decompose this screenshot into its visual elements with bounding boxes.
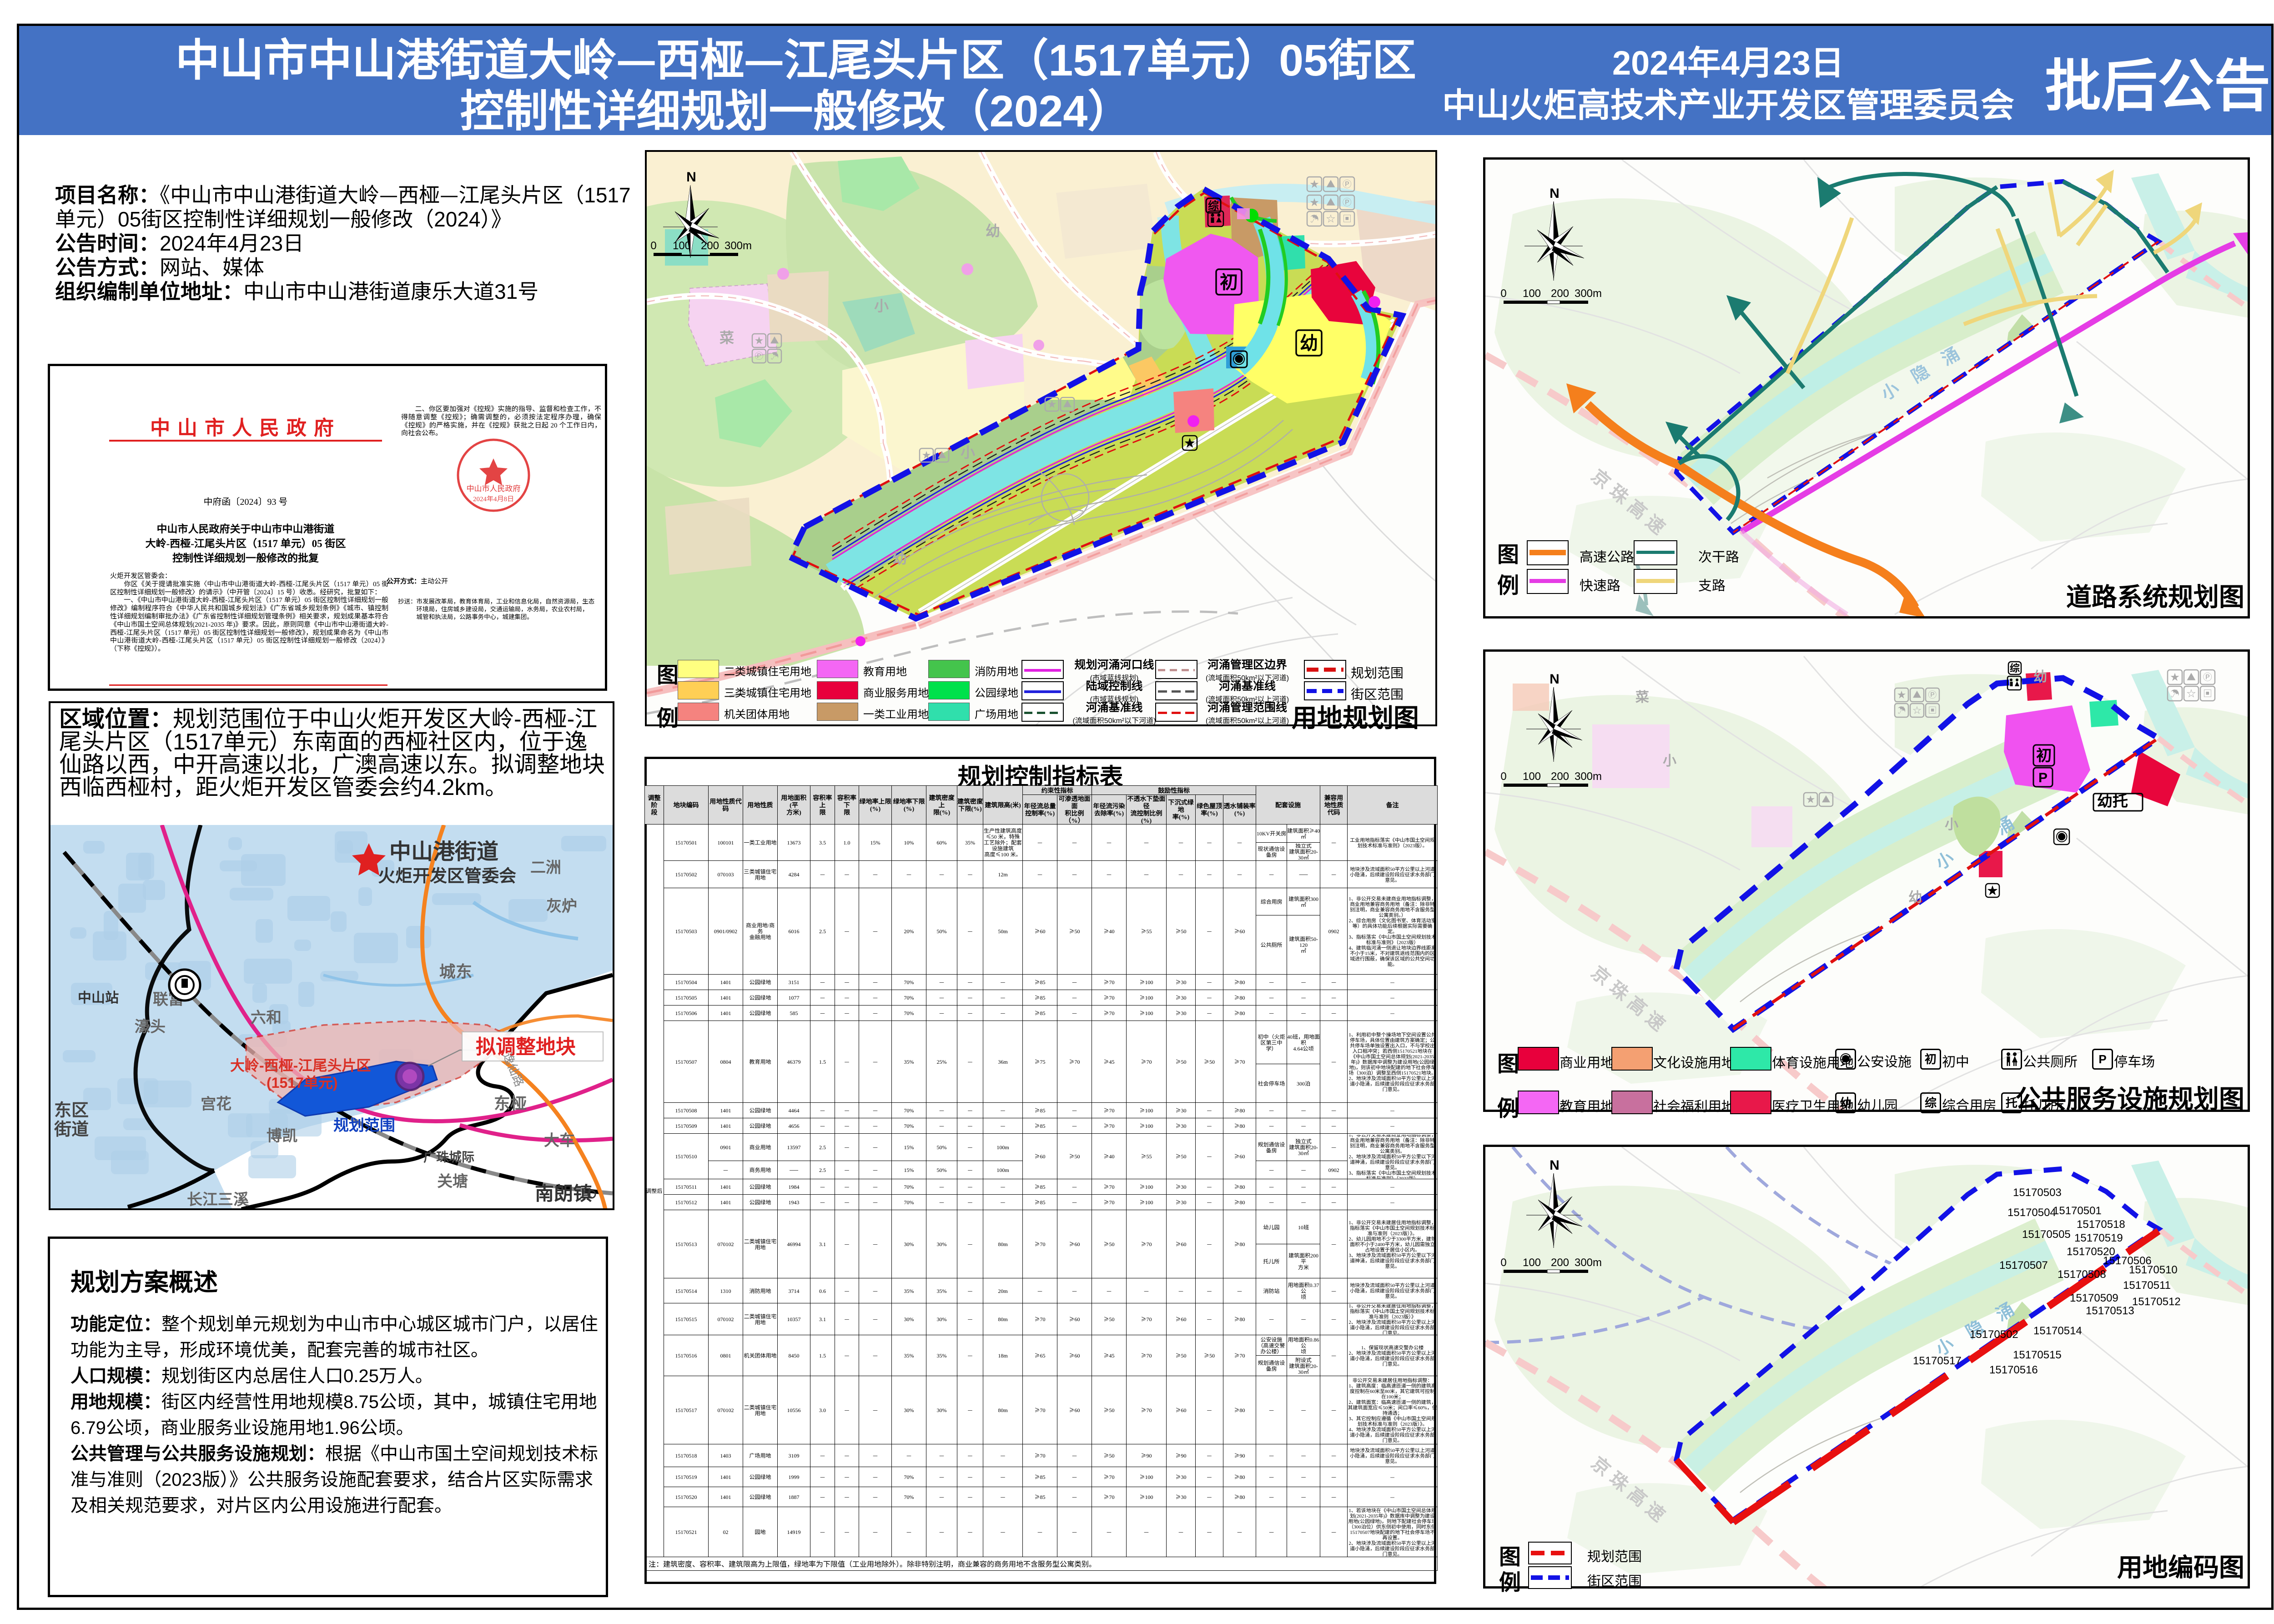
svg-text:15170516: 15170516: [1989, 1361, 2038, 1377]
svg-text:0: 0: [1500, 284, 1506, 300]
svg-text:二洲: 二洲: [530, 855, 561, 877]
svg-text:小: 小: [961, 441, 975, 462]
svg-text:N: N: [686, 166, 696, 186]
svg-text:2024年4月8日: 2024年4月8日: [473, 494, 514, 503]
svg-text:灰炉: 灰炉: [546, 894, 577, 916]
svg-text:0: 0: [1500, 767, 1506, 783]
svg-text:300m: 300m: [724, 236, 752, 252]
svg-text:濠头: 濠头: [135, 1014, 166, 1036]
svg-text:菜: 菜: [1635, 686, 1650, 706]
svg-text:☆: ☆: [2187, 686, 2196, 699]
svg-text:15170504: 15170504: [2007, 1203, 2056, 1219]
svg-text:六和: 六和: [251, 1005, 282, 1027]
svg-text:15170502: 15170502: [1970, 1325, 2018, 1341]
svg-text:小: 小: [1945, 813, 1958, 833]
svg-text:综: 综: [1208, 197, 1219, 213]
svg-text:★: ★: [1310, 195, 1319, 208]
svg-text:☂: ☂: [1897, 704, 1906, 716]
svg-text:菜: 菜: [719, 327, 735, 347]
svg-text:200: 200: [1551, 284, 1569, 300]
svg-text:300m: 300m: [1575, 284, 1602, 300]
svg-text:15170510: 15170510: [2129, 1261, 2178, 1277]
svg-text:长江三溪: 长江三溪: [187, 1187, 249, 1209]
svg-text:宫花: 宫花: [201, 1091, 231, 1114]
svg-text:★: ★: [922, 449, 931, 461]
svg-text:0: 0: [650, 236, 656, 252]
svg-text:15170517: 15170517: [1913, 1352, 1962, 1368]
svg-text:★: ★: [755, 334, 763, 347]
svg-text:▲: ▲: [1326, 177, 1335, 190]
svg-text:规划范围: 规划范围: [333, 1113, 395, 1135]
svg-text:街道: 街道: [54, 1115, 89, 1140]
svg-text:火炬开发区管委会: 火炬开发区管委会: [378, 862, 516, 887]
svg-text:N: N: [1550, 182, 1560, 202]
svg-text:Ⓟ: Ⓟ: [755, 350, 763, 362]
svg-text:初: 初: [2036, 743, 2052, 765]
svg-text:▣: ▣: [1343, 211, 1352, 225]
svg-text:综: 综: [2010, 660, 2020, 675]
svg-text:15170515: 15170515: [2013, 1346, 2062, 1362]
svg-text:中山站: 中山站: [78, 986, 119, 1006]
svg-text:100: 100: [673, 236, 691, 252]
svg-text:中山港街道: 中山港街道: [389, 834, 498, 865]
svg-text:幼: 幼: [1300, 328, 1318, 355]
svg-text:P: P: [2038, 766, 2048, 786]
svg-text:N: N: [1550, 1154, 1560, 1174]
svg-text:▣: ▣: [1928, 704, 1937, 716]
svg-text:200: 200: [1551, 767, 1569, 783]
svg-text:100: 100: [1523, 284, 1541, 300]
svg-text:☆: ☆: [1326, 211, 1335, 225]
svg-text:☆: ☆: [1912, 704, 1921, 716]
svg-text:★: ★: [1310, 177, 1319, 190]
svg-text:N: N: [1550, 668, 1560, 688]
svg-text:★: ★: [1806, 793, 1815, 805]
svg-text:幼: 幼: [892, 547, 907, 568]
svg-text:小: 小: [874, 295, 889, 316]
svg-text:广珠城际: 广珠城际: [423, 1147, 474, 1166]
svg-text:15170513: 15170513: [2086, 1302, 2134, 1317]
svg-text:关塘: 关塘: [437, 1169, 468, 1191]
svg-text:★: ★: [1897, 689, 1906, 701]
svg-text:100: 100: [1523, 767, 1541, 783]
svg-text:Ⓟ: Ⓟ: [1928, 689, 1937, 701]
svg-text:▲: ▲: [1326, 195, 1335, 208]
svg-text:300m: 300m: [1575, 1253, 1602, 1269]
svg-text:☂: ☂: [1310, 211, 1319, 225]
svg-text:200: 200: [1551, 1253, 1569, 1269]
svg-text:拟调整地块: 拟调整地块: [476, 1031, 576, 1060]
svg-text:幼托: 幼托: [2097, 789, 2128, 811]
svg-text:▲: ▲: [937, 449, 946, 461]
svg-text:幼: 幼: [1908, 886, 1922, 906]
svg-text:小: 小: [1663, 749, 1676, 769]
svg-text:15170503: 15170503: [2013, 1183, 2062, 1199]
svg-text:▲: ▲: [2187, 670, 2196, 683]
svg-text:Ⓟ: Ⓟ: [1343, 195, 1352, 208]
svg-text:★: ★: [1987, 883, 1997, 897]
svg-text:0: 0: [1500, 1253, 1506, 1269]
svg-text:南朗镇: 南朗镇: [535, 1178, 592, 1206]
svg-text:100: 100: [1523, 1253, 1541, 1269]
svg-text:Ⓟ: Ⓟ: [2203, 670, 2212, 683]
svg-text:▣: ▣: [2203, 686, 2212, 699]
svg-text:▲: ▲: [1912, 689, 1921, 701]
svg-text:幼: 幼: [2033, 665, 2047, 685]
svg-text:▲: ▲: [770, 334, 779, 347]
svg-text:15170511: 15170511: [2123, 1276, 2171, 1292]
svg-text:▲: ▲: [1821, 793, 1830, 805]
svg-text:◉: ◉: [2056, 828, 2068, 845]
svg-text:☂: ☂: [770, 350, 779, 362]
svg-text:(1517单元): (1517单元): [267, 1071, 338, 1092]
svg-text:15170512: 15170512: [2132, 1292, 2181, 1308]
svg-text:★: ★: [2170, 670, 2179, 683]
svg-text:★: ★: [1185, 435, 1195, 450]
svg-text:◉: ◉: [1233, 350, 1245, 368]
svg-text:15170514: 15170514: [2033, 1322, 2082, 1337]
svg-text:200: 200: [701, 236, 719, 252]
svg-text:城东: 城东: [439, 959, 472, 982]
svg-text:15170508: 15170508: [2058, 1265, 2106, 1281]
svg-text:大车: 大车: [544, 1128, 575, 1150]
svg-text:15170507: 15170507: [1999, 1256, 2048, 1272]
svg-text:15170505: 15170505: [2022, 1225, 2071, 1241]
svg-text:东桠: 东桠: [494, 1091, 527, 1114]
svg-text:★: ★: [1047, 398, 1056, 410]
svg-text:博凯: 博凯: [267, 1123, 297, 1146]
svg-text:▲: ▲: [1063, 398, 1072, 410]
svg-text:☂: ☂: [2170, 686, 2179, 699]
svg-text:初: 初: [1220, 267, 1238, 294]
svg-text:中山市人民政府: 中山市人民政府: [467, 482, 521, 493]
svg-text:幼: 幼: [986, 220, 1000, 241]
svg-text:300m: 300m: [1575, 767, 1602, 783]
svg-text:Ⓟ: Ⓟ: [1343, 177, 1352, 190]
